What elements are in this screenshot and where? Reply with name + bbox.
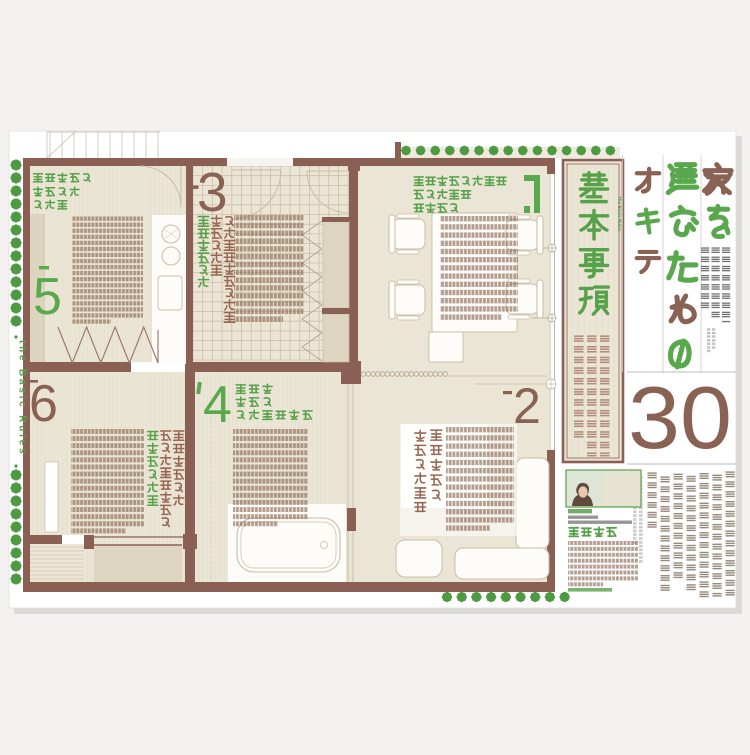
svg-text:6: 6 bbox=[29, 375, 58, 433]
svg-text:4: 4 bbox=[203, 376, 232, 434]
svg-text:3: 3 bbox=[197, 161, 228, 223]
svg-text:5: 5 bbox=[33, 268, 62, 326]
svg-text:the Basic Rules: the Basic Rules bbox=[17, 340, 28, 456]
svg-text:2: 2 bbox=[513, 378, 541, 434]
svg-text:30: 30 bbox=[628, 368, 732, 467]
svg-text:The Basic Rules: The Basic Rules bbox=[617, 196, 622, 232]
